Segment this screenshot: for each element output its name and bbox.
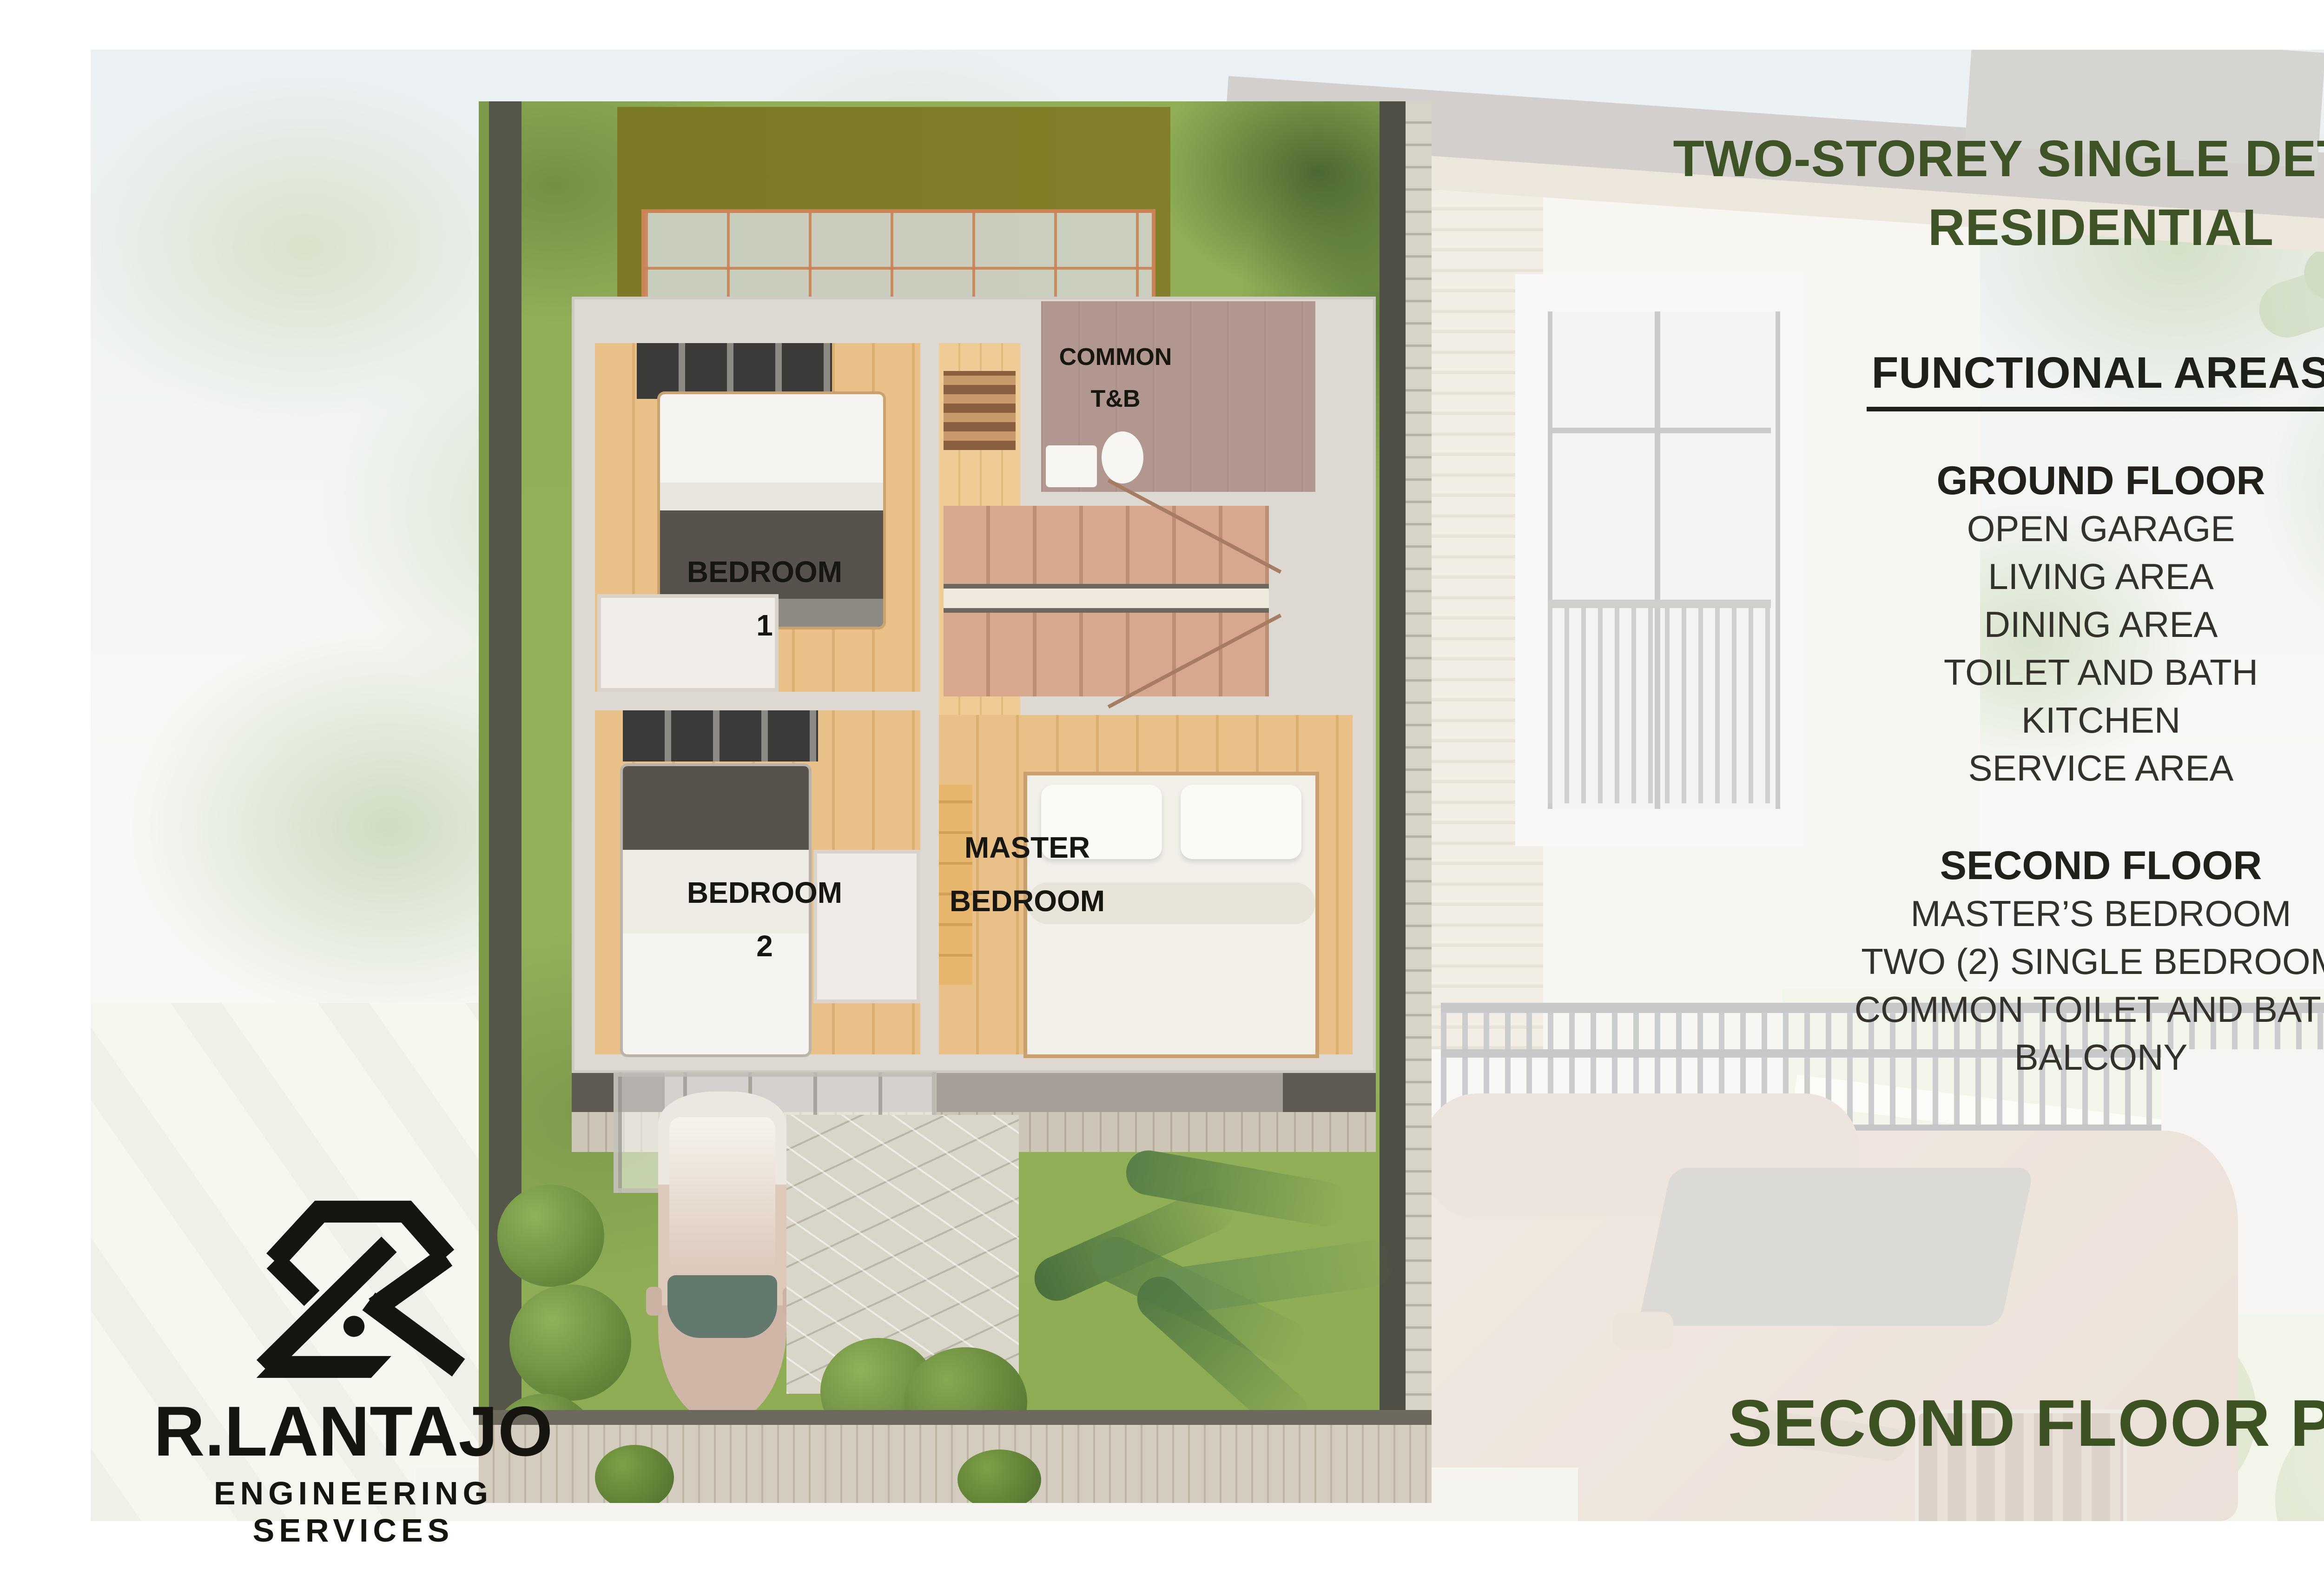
- plan-car-topview: [658, 1092, 786, 1424]
- page-title: TWO-STOREY SINGLE DETACHED RESIDENTIAL: [1636, 125, 2324, 262]
- label-bedroom1-line2: 1: [632, 599, 897, 652]
- logo-company-name: R.LANTAJO: [107, 1391, 600, 1472]
- label-bedroom1-line1: BEDROOM: [632, 545, 897, 599]
- label-common-tnb: COMMON T&B: [1004, 336, 1227, 420]
- ground-floor-list: GROUND FLOOR OPEN GARAGE LIVING AREA DIN…: [1636, 457, 2324, 792]
- stair-stringer: [1108, 614, 1282, 708]
- tnb-toilet: [1102, 431, 1143, 483]
- stair-stringer: [1108, 479, 1282, 574]
- stairs: [944, 506, 1269, 696]
- terrace-planter: [1283, 1073, 1376, 1112]
- logo-company-subtitle: ENGINEERING SERVICES: [107, 1475, 600, 1549]
- ground-floor-item: TOILET AND BATH: [1636, 649, 2324, 696]
- label-master-bedroom: MASTER BEDROOM: [897, 821, 1157, 928]
- logo-top-diamond: [274, 1212, 446, 1261]
- deck-curb: [479, 1410, 1432, 1425]
- label-bedroom-1: BEDROOM 1: [632, 545, 897, 652]
- ground-floor-item: DINING AREA: [1636, 601, 2324, 649]
- tnb-counter: [1046, 445, 1097, 487]
- page-title-line2: RESIDENTIAL: [1636, 193, 2324, 262]
- functional-areas-heading: FUNCTIONAL AREAS: [1636, 348, 2324, 411]
- label-bedroom-2: BEDROOM 2: [632, 866, 897, 973]
- label-common-tnb-line2: T&B: [1004, 378, 1227, 420]
- label-bedroom2-line1: BEDROOM: [632, 866, 897, 920]
- functional-areas-heading-text: FUNCTIONAL AREAS: [1867, 348, 2324, 411]
- page-title-line1: TWO-STOREY SINGLE DETACHED: [1636, 125, 2324, 193]
- bush: [509, 1284, 631, 1401]
- logo-dot: [343, 1316, 364, 1337]
- label-master-line1: MASTER: [897, 821, 1157, 874]
- plan-car-windshield: [667, 1275, 777, 1338]
- logo-bowl: [375, 1257, 446, 1308]
- plan-car-roof: [669, 1117, 775, 1271]
- logo-left-hook: [274, 1261, 312, 1298]
- bedroom1-window-glazing: [637, 343, 832, 399]
- label-bedroom2-line2: 2: [632, 920, 897, 973]
- ground-floor-item: KITCHEN: [1636, 696, 2324, 744]
- ground-floor-heading: GROUND FLOOR: [1636, 457, 2324, 505]
- plan-car-mirror: [646, 1287, 662, 1316]
- second-floor-item: COMMON TOILET AND BATH: [1636, 986, 2324, 1033]
- bedroom2-window-glazing: [623, 710, 818, 761]
- ground-floor-item: SERVICE AREA: [1636, 744, 2324, 792]
- ground-floor-item: LIVING AREA: [1636, 553, 2324, 601]
- second-floor-item: BALCONY: [1636, 1033, 2324, 1081]
- second-floor-item: TWO (2) SINGLE BEDROOM: [1636, 938, 2324, 986]
- bush: [497, 1185, 604, 1287]
- right-path: [1406, 101, 1432, 1440]
- label-master-line2: BEDROOM: [897, 874, 1157, 928]
- ground-floor-item: OPEN GARAGE: [1636, 505, 2324, 553]
- second-floor-item: MASTER’S BEDROOM: [1636, 890, 2324, 938]
- label-common-tnb-line1: COMMON: [1004, 336, 1227, 378]
- logo-base: [257, 1356, 391, 1378]
- master-pillow: [1181, 785, 1301, 859]
- site-edge-grass: [479, 101, 489, 1503]
- rlantajo-logo-icon: [253, 1190, 472, 1392]
- plan-caption: SECOND FLOOR PLAN: [1590, 1385, 2324, 1462]
- second-floor-plan-render: COMMON T&B BEDROOM 1 BEDROOM 2 MASTER BE…: [479, 101, 1432, 1503]
- presentation-board: COMMON T&B BEDROOM 1 BEDROOM 2 MASTER BE…: [0, 0, 2324, 1569]
- second-floor-list: SECOND FLOOR MASTER’S BEDROOM TWO (2) SI…: [1636, 841, 2324, 1081]
- second-floor-heading: SECOND FLOOR: [1636, 841, 2324, 890]
- stair-landing: [944, 584, 1269, 613]
